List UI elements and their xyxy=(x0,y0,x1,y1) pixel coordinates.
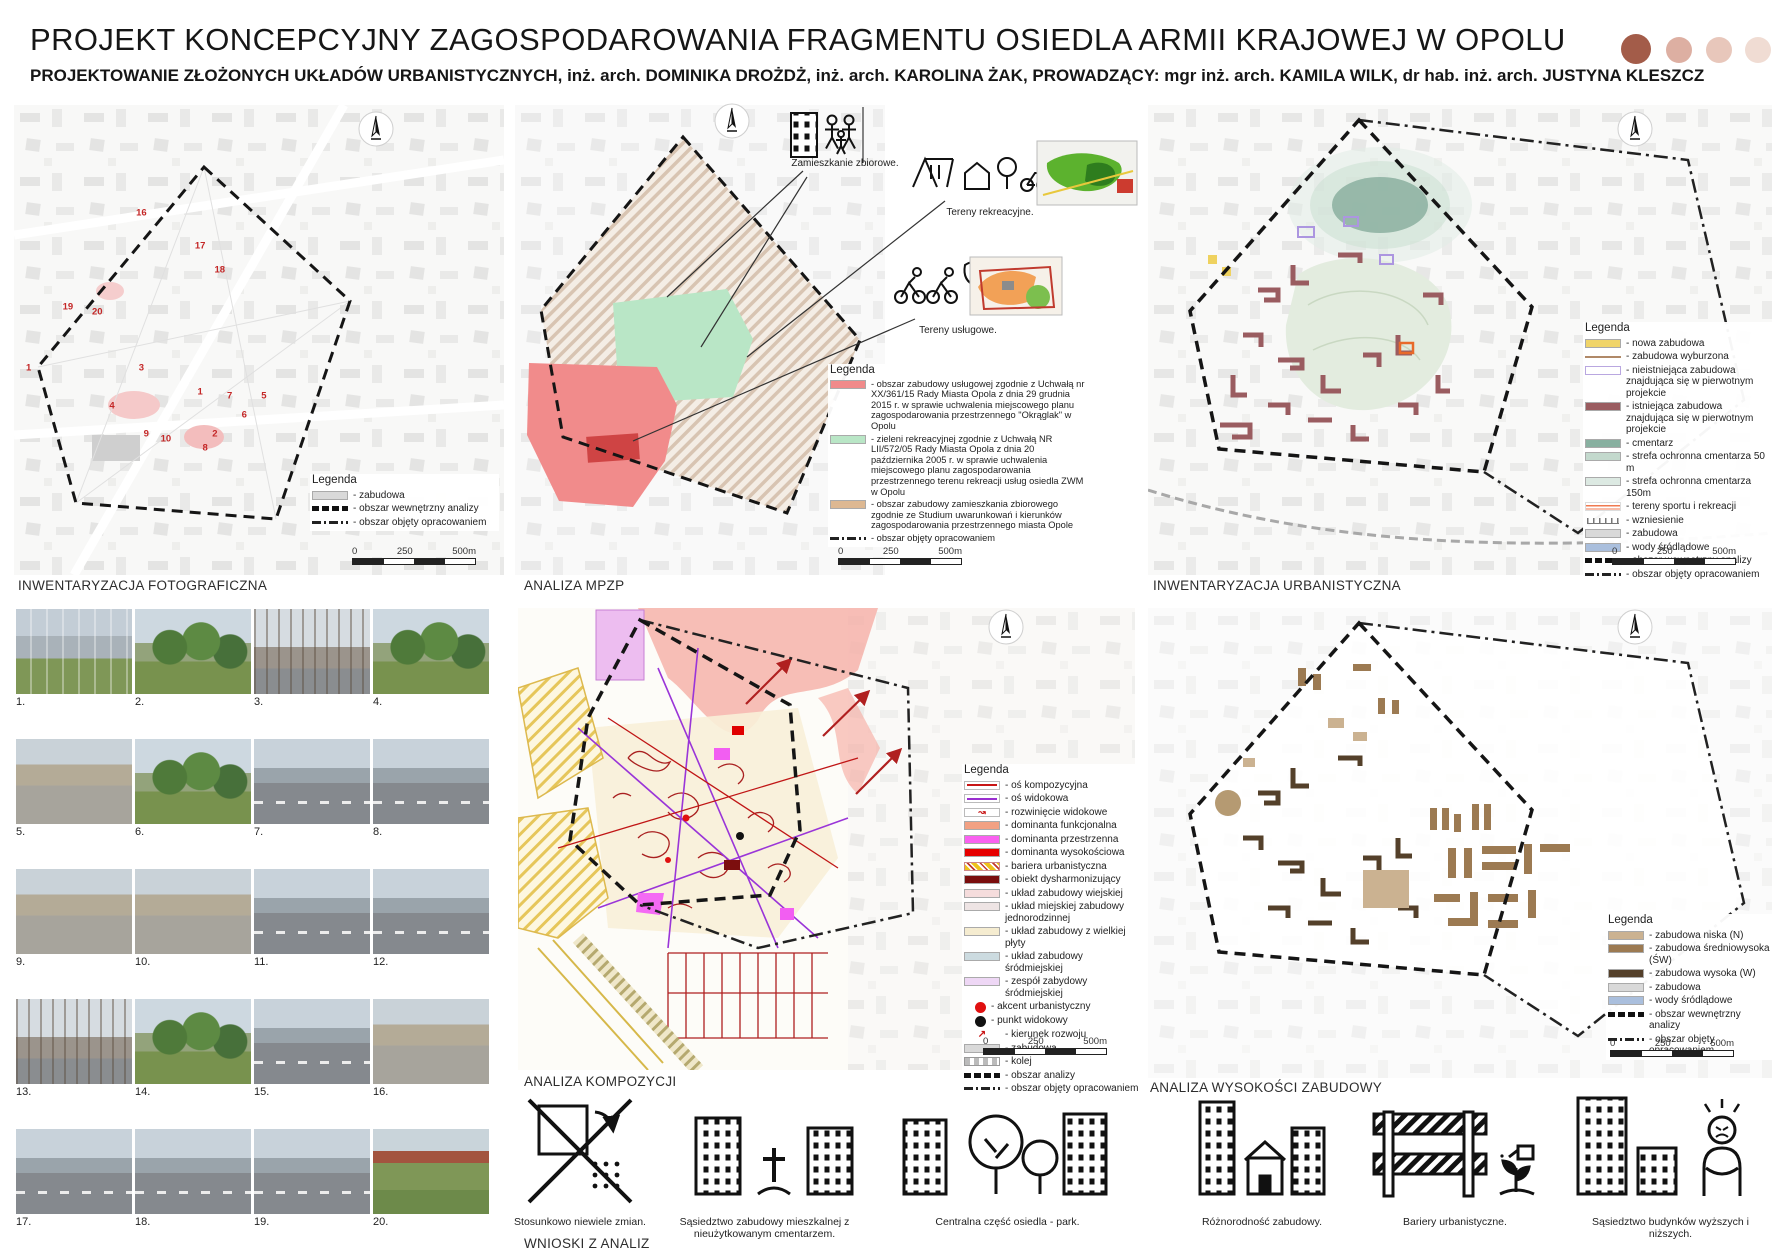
legend-items: - obszar zabudowy usługowej zgodnie z Uc… xyxy=(830,379,1088,544)
photo-point: 8 xyxy=(202,443,207,454)
central-park-icon xyxy=(900,1092,1110,1207)
legend-swatch xyxy=(1585,573,1621,576)
scale-bar: 0250500m xyxy=(352,546,476,565)
legend-swatch xyxy=(964,821,1000,830)
photo-number: 6. xyxy=(135,826,251,838)
photo-number: 19. xyxy=(254,1216,370,1228)
legend-label: - obszar wewnętrzny analizy xyxy=(1649,1009,1772,1032)
legend-label: - oś kompozycyjna xyxy=(1005,780,1140,792)
legend-label: - układ miejskiej zabudowy jednorodzinne… xyxy=(1005,901,1140,924)
few-changes-icon xyxy=(525,1096,635,1211)
photo-number: 18. xyxy=(135,1216,251,1228)
photo-thumbnail: 16. xyxy=(373,999,489,1098)
legend-swatch xyxy=(964,808,1000,817)
legend-item: - zabudowa niska (N) xyxy=(1608,930,1772,942)
legend-swatch xyxy=(964,1073,1000,1078)
photo-point: 4 xyxy=(109,400,114,411)
north-arrow-icon xyxy=(1617,609,1653,645)
legend-swatch xyxy=(312,506,348,511)
legend-swatch xyxy=(312,491,348,500)
legend-item: - wody śródlądowe xyxy=(1608,995,1772,1007)
legend-swatch xyxy=(1585,477,1621,486)
legend-label: - zabudowa xyxy=(1649,982,1772,994)
photo-image xyxy=(16,999,132,1084)
conclusion-caption: Stosunkowo niewiele zmian. xyxy=(500,1216,660,1228)
legend-item: - tereny sportu i rekreacji xyxy=(1585,501,1772,513)
legend-swatch xyxy=(1585,452,1621,461)
photo-point: 5 xyxy=(261,391,266,402)
photo-image xyxy=(373,999,489,1084)
photo-thumbnail: 3. xyxy=(254,609,370,708)
legend-swatch xyxy=(1608,944,1644,953)
photo-point: 7 xyxy=(227,391,232,402)
callout-zamieszkanie-zbiorowe: Zamieszkanie zbiorowe. xyxy=(785,158,905,169)
legend-swatch xyxy=(1585,339,1621,348)
photo-point: 20 xyxy=(92,306,103,317)
legend-swatch xyxy=(830,537,866,540)
photo-image xyxy=(16,869,132,954)
legend-item: - zabudowa wyburzona xyxy=(1585,351,1772,363)
legend-label: - bariera urbanistyczna xyxy=(1005,861,1140,873)
scale-bar: 0250500m xyxy=(838,546,962,565)
legend-item: - wzniesienie xyxy=(1585,515,1772,527)
legend-item: - zabudowa xyxy=(1608,982,1772,994)
legend-label: - zabudowa wyburzona xyxy=(1626,351,1772,363)
legend-label: - dominanta funkcjonalna xyxy=(1005,820,1140,832)
legend-items: - nowa zabudowa - zabudowa wyburzona - n… xyxy=(1585,338,1772,581)
legend-swatch xyxy=(1585,366,1621,375)
urban-barriers-icon xyxy=(1368,1092,1543,1207)
map-title-urban-inventory: INWENTARYZACJA URBANISTYCZNA xyxy=(1153,578,1401,593)
recreation-minimap xyxy=(1037,141,1137,205)
legend-label: - zabudowa wysoka (W) xyxy=(1649,968,1772,980)
photo-point: 19 xyxy=(63,302,74,313)
legend-label: - układ zabudowy śródmiejskiej xyxy=(1005,951,1140,974)
legend-item: - układ zabudowy śródmiejskiej xyxy=(964,951,1140,974)
legend-label: - zespół zabydowy śródmiejskiej xyxy=(1005,976,1140,999)
photo-number: 8. xyxy=(373,826,489,838)
legend-title: Legenda xyxy=(830,365,1088,376)
legend-label: - akcent urbanistyczny xyxy=(991,1001,1140,1013)
palette-dot xyxy=(1706,37,1732,63)
page-subtitle: PROJEKTOWANIE ZŁOŻONYCH UKŁADÓW URBANIST… xyxy=(30,66,1704,86)
legend-item: - obszar zabudowy usługowej zgodnie z Uc… xyxy=(830,379,1088,432)
photo-point: 1 xyxy=(26,363,31,374)
legend-swatch xyxy=(964,927,1000,936)
palette-dot xyxy=(1745,37,1771,63)
legend-swatch xyxy=(830,500,866,509)
photo-number: 15. xyxy=(254,1086,370,1098)
legend-swatch xyxy=(964,952,1000,961)
legend-item: - istniejąca zabudowa znajdująca się w p… xyxy=(1585,401,1772,436)
legend-item: - cmentarz xyxy=(1585,438,1772,450)
legend-swatch xyxy=(1585,529,1621,538)
legend-item: - obszar objęty opracowaniem xyxy=(830,533,1088,544)
palette-dot xyxy=(1621,34,1651,64)
photo-point: 10 xyxy=(161,433,172,444)
services-minimap xyxy=(970,257,1062,315)
photo-point: 3 xyxy=(139,363,144,374)
page-title: PROJEKT KONCEPCYJNY ZAGOSPODAROWANIA FRA… xyxy=(30,22,1566,58)
legend-swatch xyxy=(1585,402,1621,411)
legend-label: - strefa ochronna cmentarza 50 m xyxy=(1626,451,1772,474)
recreation-icons xyxy=(913,158,1049,191)
photo-image xyxy=(16,739,132,824)
legend-urban-inventory: Legenda - nowa zabudowa - zabudowa wybur… xyxy=(1583,322,1772,583)
legend-title: Legenda xyxy=(1608,915,1772,927)
legend-item: - kolej xyxy=(964,1056,1140,1068)
legend-label: - obszar wewnętrzny analizy xyxy=(353,503,497,515)
legend-label: - wzniesienie xyxy=(1626,515,1772,527)
legend-swatch xyxy=(964,835,1000,844)
photo-point: 6 xyxy=(242,410,247,421)
photo-point: 16 xyxy=(136,208,147,219)
photo-thumbnail: 14. xyxy=(135,999,251,1098)
legend-item: - strefa ochronna cmentarza 150m xyxy=(1585,476,1772,499)
legend-swatch xyxy=(964,977,1000,986)
photo-thumbnail: 2. xyxy=(135,609,251,708)
scale-bar: 0250500m xyxy=(983,1036,1107,1055)
photo-grid: 1. 2. 3. 4. 5. 6. xyxy=(16,609,489,1228)
scale-bar: 0250500m xyxy=(1610,1038,1734,1057)
photo-image xyxy=(135,869,251,954)
photo-number: 7. xyxy=(254,826,370,838)
photo-number: 14. xyxy=(135,1086,251,1098)
legend-title: Legenda xyxy=(964,765,1140,777)
photo-image xyxy=(135,739,251,824)
legend-swatch xyxy=(1608,996,1644,1005)
legend-label: - obszar zabudowy zamieszkania zbioroweg… xyxy=(871,499,1088,531)
conclusion-caption: Sąsiedztwo budynków wyższych i niższych. xyxy=(1578,1216,1763,1240)
callout-tereny-rekreacyjne: Tereny rekreacyjne. xyxy=(930,207,1050,218)
legend-item: - oś kompozycyjna xyxy=(964,780,1140,792)
photo-image xyxy=(254,999,370,1084)
legend-swatch xyxy=(964,848,1000,857)
legend-label: - wody śródlądowe xyxy=(1649,995,1772,1007)
legend-title: Legenda xyxy=(1585,323,1772,335)
photo-thumbnail: 5. xyxy=(16,739,132,838)
photo-thumbnail: 12. xyxy=(373,869,489,968)
legend-label: - nieistniejąca zabudowa znajdująca się … xyxy=(1626,365,1772,400)
legend-label: - dominanta wysokościowa xyxy=(1005,847,1140,859)
photo-thumbnail: 20. xyxy=(373,1129,489,1228)
legend-swatch xyxy=(1608,983,1644,992)
legend-label: - oś widokowa xyxy=(1005,793,1140,805)
photo-number: 2. xyxy=(135,696,251,708)
legend-swatch xyxy=(1608,1012,1644,1017)
legend-item: - obszar wewnętrzny analizy xyxy=(312,503,497,515)
legend-item: - obszar objęty opracowaniem xyxy=(1585,569,1772,581)
legend-item: - układ miejskiej zabudowy jednorodzinne… xyxy=(964,901,1140,924)
photo-point: 18 xyxy=(215,264,226,275)
legend-swatch xyxy=(1585,516,1621,525)
legend-label: - zabudowa średniowysoka (ŚW) xyxy=(1649,943,1772,966)
photo-thumbnail: 4. xyxy=(373,609,489,708)
photo-thumbnail: 6. xyxy=(135,739,251,838)
varied-buildings-icon xyxy=(1192,1092,1332,1207)
photo-number: 11. xyxy=(254,956,370,968)
photo-image xyxy=(254,869,370,954)
legend-swatch xyxy=(1585,439,1621,448)
photo-number: 10. xyxy=(135,956,251,968)
photo-thumbnail: 11. xyxy=(254,869,370,968)
photo-image xyxy=(135,1129,251,1214)
legend-item: - strefa ochronna cmentarza 50 m xyxy=(1585,451,1772,474)
legend-label: - kolej xyxy=(1005,1056,1140,1068)
callout-tereny-uslugowe: Tereny usługowe. xyxy=(903,325,1013,336)
photo-thumbnail: 17. xyxy=(16,1129,132,1228)
photo-number: 17. xyxy=(16,1216,132,1228)
scale-bar: 0250500m xyxy=(1612,546,1736,565)
legend-label: - obszar zabudowy usługowej zgodnie z Uc… xyxy=(871,379,1088,432)
legend-item: - oś widokowa xyxy=(964,793,1140,805)
legend-label: - obszar analizy xyxy=(1005,1070,1140,1082)
legend-swatch xyxy=(964,1087,1000,1090)
photo-image xyxy=(373,609,489,694)
legend-swatch xyxy=(975,1002,986,1013)
legend-item: - obszar zabudowy zamieszkania zbioroweg… xyxy=(830,499,1088,531)
legend-label: - obszar objęty opracowaniem xyxy=(871,533,1088,544)
legend-mpzp: Legenda - obszar zabudowy usługowej zgod… xyxy=(828,364,1090,547)
legend-label: - istniejąca zabudowa znajdująca się w p… xyxy=(1626,401,1772,436)
legend-label: - zabudowa niska (N) xyxy=(1649,930,1772,942)
legend-swatch xyxy=(964,889,1000,898)
legend-label: - obiekt dysharmonizujący xyxy=(1005,874,1140,886)
photo-thumbnail: 8. xyxy=(373,739,489,838)
legend-label: - obszar objęty opracowaniem xyxy=(1626,569,1772,581)
map-title-mpzp: ANALIZA MPZP xyxy=(524,578,624,593)
poster: PROJEKT KONCEPCYJNY ZAGOSPODAROWANIA FRA… xyxy=(0,0,1772,1251)
legend-label: - zabudowa xyxy=(1626,528,1772,540)
conclusion-caption: Bariery urbanistyczne. xyxy=(1365,1216,1545,1228)
legend-swatch xyxy=(964,794,1000,803)
legend-item: - dominanta wysokościowa xyxy=(964,847,1140,859)
photo-thumbnail: 10. xyxy=(135,869,251,968)
legend-label: - układ zabudowy wiejskiej xyxy=(1005,888,1140,900)
conclusion-caption: Centralna część osiedla - park. xyxy=(915,1216,1100,1228)
photo-image xyxy=(16,609,132,694)
photo-number: 20. xyxy=(373,1216,489,1228)
legend-item: - nieistniejąca zabudowa znajdująca się … xyxy=(1585,365,1772,400)
legend-label: - obszar objęty opracowaniem xyxy=(353,517,497,529)
legend-item: - zabudowa średniowysoka (ŚW) xyxy=(1608,943,1772,966)
conclusion-caption: Sąsiedztwo zabudowy mieszkalnej z nieuży… xyxy=(672,1216,857,1240)
legend-item: - nowa zabudowa xyxy=(1585,338,1772,350)
legend-swatch xyxy=(964,862,1000,871)
photo-number: 1. xyxy=(16,696,132,708)
legend-item: - punkt widokowy xyxy=(964,1015,1140,1027)
legend-label: - zieleni rekreacyjnej zgodnie z Uchwałą… xyxy=(871,434,1088,498)
photo-number: 4. xyxy=(373,696,489,708)
north-arrow-icon xyxy=(988,609,1024,645)
legend-items: - zabudowa - obszar wewnętrzny analizy -… xyxy=(312,490,497,529)
photo-number: 5. xyxy=(16,826,132,838)
photo-thumbnail: 18. xyxy=(135,1129,251,1228)
legend-item: - zabudowa xyxy=(1585,528,1772,540)
legend-item: - zespół zabydowy śródmiejskiej xyxy=(964,976,1140,999)
photo-number: 13. xyxy=(16,1086,132,1098)
photo-thumbnail: 1. xyxy=(16,609,132,708)
photo-image xyxy=(135,609,251,694)
photo-number: 16. xyxy=(373,1086,489,1098)
legend-swatch xyxy=(1585,352,1621,361)
legend-item: - obszar analizy xyxy=(964,1070,1140,1082)
photo-image xyxy=(16,1129,132,1214)
legend-item: - dominanta funkcjonalna xyxy=(964,820,1140,832)
legend-swatch xyxy=(964,781,1000,790)
photo-image xyxy=(254,1129,370,1214)
conclusions-title: WNIOSKI Z ANALIZ xyxy=(524,1236,650,1251)
legend-swatch xyxy=(964,902,1000,911)
photo-number: 3. xyxy=(254,696,370,708)
legend-label: - nowa zabudowa xyxy=(1626,338,1772,350)
housing-cemetery-icon xyxy=(690,1092,860,1207)
photo-image xyxy=(135,999,251,1084)
legend-label: - rozwinięcie widokowe xyxy=(1005,807,1140,819)
legend-title: Legenda xyxy=(312,475,497,487)
photo-point: 2 xyxy=(212,429,217,440)
legend-swatch xyxy=(830,380,866,389)
tall-short-neighbours-icon xyxy=(1572,1092,1767,1207)
legend-label: - cmentarz xyxy=(1626,438,1772,450)
legend-swatch xyxy=(975,1016,986,1027)
legend-label: - dominanta przestrzenna xyxy=(1005,834,1140,846)
legend-item: - układ zabudowy wiejskiej xyxy=(964,888,1140,900)
photo-point: 9 xyxy=(144,429,149,440)
legend-item: - układ zabudowy z wielkiej płyty xyxy=(964,926,1140,949)
photo-image xyxy=(373,739,489,824)
legend-item: - zabudowa xyxy=(312,490,497,502)
legend-item: - bariera urbanistyczna xyxy=(964,861,1140,873)
legend-swatch xyxy=(1585,502,1621,511)
legend-item: - akcent urbanistyczny xyxy=(964,1001,1140,1013)
photo-thumbnail: 15. xyxy=(254,999,370,1098)
photo-thumbnail: 13. xyxy=(16,999,132,1098)
legend-item: - obiekt dysharmonizujący xyxy=(964,874,1140,886)
palette-dot xyxy=(1666,37,1692,63)
legend-swatch xyxy=(1608,969,1644,978)
photo-number: 9. xyxy=(16,956,132,968)
legend-item: - rozwinięcie widokowe xyxy=(964,807,1140,819)
legend-photo-inventory: Legenda - zabudowa - obszar wewnętrzny a… xyxy=(310,474,499,531)
map-title-photo-inventory: INWENTARYZACJA FOTOGRAFICZNA xyxy=(18,578,267,593)
legend-item: - zabudowa wysoka (W) xyxy=(1608,968,1772,980)
legend-label: - zabudowa xyxy=(353,490,497,502)
photo-number: 12. xyxy=(373,956,489,968)
legend-label: - punkt widokowy xyxy=(991,1015,1140,1027)
photo-point: 1 xyxy=(198,386,203,397)
legend-item: - dominanta przestrzenna xyxy=(964,834,1140,846)
legend-item: - obszar wewnętrzny analizy xyxy=(1608,1009,1772,1032)
photo-point: 17 xyxy=(195,241,206,252)
legend-swatch xyxy=(830,435,866,444)
photo-thumbnail: 19. xyxy=(254,1129,370,1228)
legend-item: - obszar objęty opracowaniem xyxy=(312,517,497,529)
legend-swatch xyxy=(964,1057,1000,1066)
legend-label: - strefa ochronna cmentarza 150m xyxy=(1626,476,1772,499)
legend-label: - układ zabudowy z wielkiej płyty xyxy=(1005,926,1140,949)
legend-label: - tereny sportu i rekreacji xyxy=(1626,501,1772,513)
photo-image xyxy=(373,869,489,954)
legend-item: - zieleni rekreacyjnej zgodnie z Uchwałą… xyxy=(830,434,1088,498)
legend-swatch xyxy=(1608,931,1644,940)
photo-thumbnail: 7. xyxy=(254,739,370,838)
photo-image xyxy=(254,609,370,694)
north-arrow-icon xyxy=(714,103,750,139)
map-title-composition: ANALIZA KOMPOZYCJI xyxy=(524,1074,676,1089)
photo-image xyxy=(373,1129,489,1214)
photo-thumbnail: 9. xyxy=(16,869,132,968)
conclusion-caption: Różnorodność zabudowy. xyxy=(1172,1216,1352,1228)
legend-swatch xyxy=(312,521,348,524)
north-arrow-icon xyxy=(1617,111,1653,147)
photo-image xyxy=(254,739,370,824)
legend-swatch xyxy=(964,875,1000,884)
north-arrow-icon xyxy=(358,111,394,147)
